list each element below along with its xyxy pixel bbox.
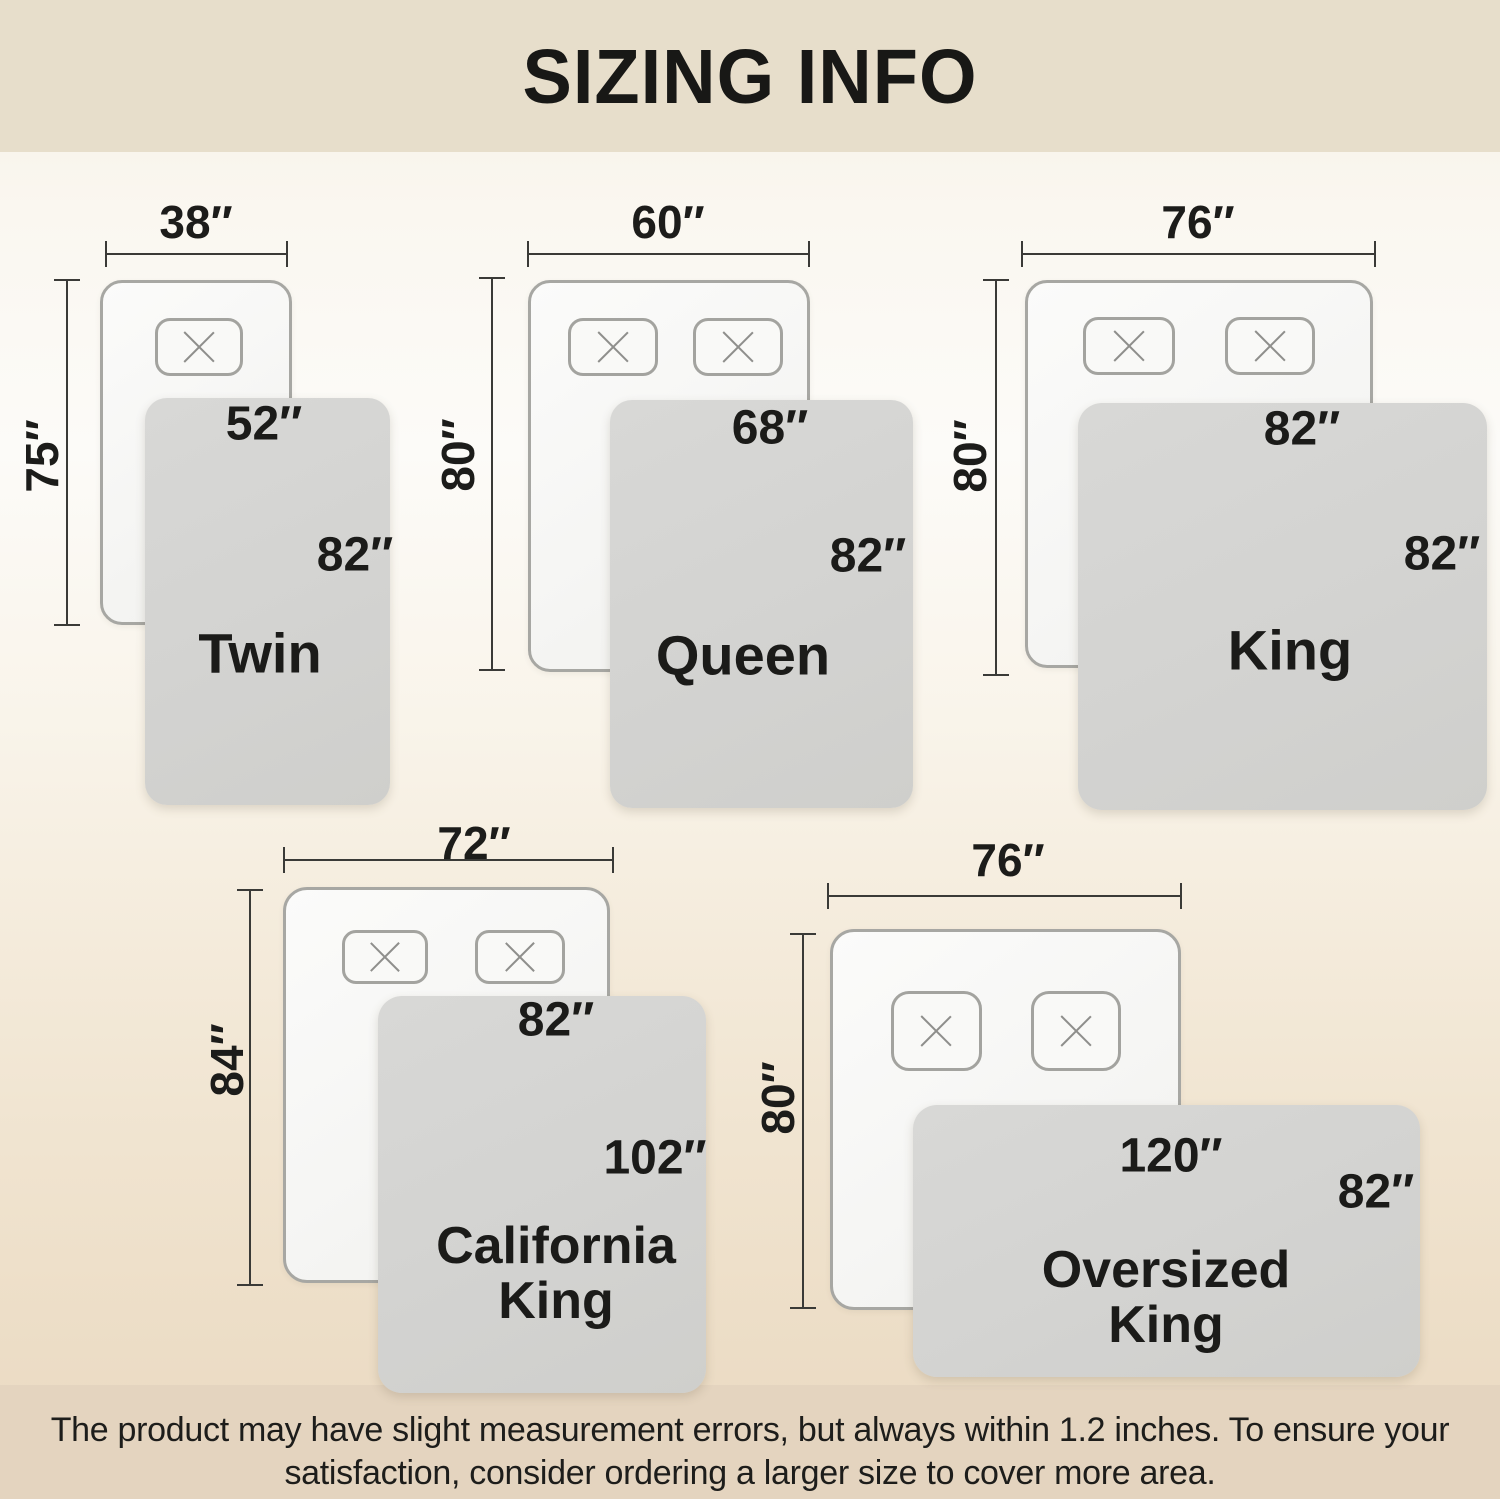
- queen-height-dim-line: [491, 278, 493, 670]
- king-name-label: King: [1228, 620, 1352, 679]
- california-king-bed-height-label: 84″: [200, 1023, 254, 1096]
- queen-name-line: Queen: [656, 625, 830, 684]
- sizing-infographic: SIZING INFO The product may have slight …: [0, 0, 1500, 1499]
- oversized-king-bed-width-label: 76″: [971, 833, 1044, 887]
- queen-width-dim-cap-right: [808, 241, 810, 267]
- twin-height-dim-cap-top: [54, 279, 80, 281]
- queen-height-dim-cap-top: [479, 277, 505, 279]
- oversized-king-pillow-2: [1031, 991, 1121, 1071]
- twin-width-dim-cap-right: [286, 241, 288, 267]
- california-king-name-line: California: [436, 1219, 676, 1274]
- twin-pillow-1: [155, 318, 243, 376]
- queen-width-dim-line: [528, 253, 809, 255]
- california-king-blanket-width-label: 82″: [518, 993, 594, 1048]
- twin-bed-width-label: 38″: [159, 195, 232, 249]
- king-width-dim-cap-right: [1374, 241, 1376, 267]
- oversized-king-pillow-1: [891, 991, 982, 1071]
- diagram-stage: 38″75″52″82″Twin60″80″68″82″Queen76″80″8…: [0, 0, 1500, 1499]
- california-king-pillow-2: [475, 930, 565, 984]
- queen-pillow-1: [568, 318, 658, 376]
- oversized-king-blanket-height-label: 82″: [1338, 1165, 1414, 1220]
- california-king-name-label: CaliforniaKing: [436, 1219, 676, 1329]
- california-king-blanket-height-label: 102″: [603, 1131, 706, 1186]
- twin-height-dim-cap-bottom: [54, 624, 80, 626]
- oversized-king-name-label: OversizedKing: [1042, 1243, 1291, 1353]
- oversized-king-name-line: King: [1042, 1298, 1291, 1353]
- queen-name-label: Queen: [656, 625, 830, 684]
- oversized-king-bed-height-label: 80″: [751, 1061, 805, 1134]
- oversized-king-height-dim-cap-bottom: [790, 1307, 816, 1309]
- california-king-bed-width-label: 72″: [437, 816, 510, 870]
- california-king-height-dim-cap-bottom: [237, 1284, 263, 1286]
- queen-width-dim-cap-left: [527, 241, 529, 267]
- king-width-dim-cap-left: [1021, 241, 1023, 267]
- king-height-dim-cap-top: [983, 279, 1009, 281]
- twin-blanket: [145, 398, 390, 805]
- oversized-king-height-dim-cap-top: [790, 933, 816, 935]
- king-pillow-1: [1083, 317, 1175, 375]
- oversized-king-width-dim-cap-right: [1180, 883, 1182, 909]
- twin-width-dim-cap-left: [105, 241, 107, 267]
- oversized-king-width-dim-cap-left: [827, 883, 829, 909]
- california-king-pillow-1: [342, 930, 428, 984]
- queen-blanket-height-label: 82″: [830, 529, 906, 584]
- king-width-dim-line: [1022, 253, 1375, 255]
- oversized-king-width-dim-line: [828, 895, 1181, 897]
- twin-bed-height-label: 75″: [15, 419, 69, 492]
- twin-name-line: Twin: [198, 623, 321, 682]
- king-bed-height-label: 80″: [943, 419, 997, 492]
- king-bed-width-label: 76″: [1161, 195, 1234, 249]
- queen-pillow-2: [693, 318, 783, 376]
- oversized-king-name-line: Oversized: [1042, 1243, 1291, 1298]
- california-king-name-line: King: [436, 1274, 676, 1329]
- king-blanket-height-label: 82″: [1404, 527, 1480, 582]
- king-pillow-2: [1225, 317, 1315, 375]
- queen-bed-width-label: 60″: [631, 195, 704, 249]
- king-height-dim-cap-bottom: [983, 674, 1009, 676]
- twin-blanket-width-label: 52″: [226, 397, 302, 452]
- twin-name-label: Twin: [198, 623, 321, 682]
- queen-blanket: [610, 400, 913, 808]
- queen-bed-height-label: 80″: [431, 418, 485, 491]
- california-king-height-dim-cap-top: [237, 889, 263, 891]
- queen-blanket-width-label: 68″: [732, 401, 808, 456]
- king-name-line: King: [1228, 620, 1352, 679]
- california-king-width-dim-cap-left: [283, 847, 285, 873]
- king-blanket: [1078, 403, 1487, 810]
- twin-blanket-height-label: 82″: [317, 528, 393, 583]
- twin-width-dim-line: [106, 253, 287, 255]
- king-blanket-width-label: 82″: [1264, 402, 1340, 457]
- queen-height-dim-cap-bottom: [479, 669, 505, 671]
- california-king-width-dim-cap-right: [612, 847, 614, 873]
- oversized-king-blanket-width-label: 120″: [1119, 1129, 1222, 1184]
- california-king-blanket: [378, 996, 706, 1393]
